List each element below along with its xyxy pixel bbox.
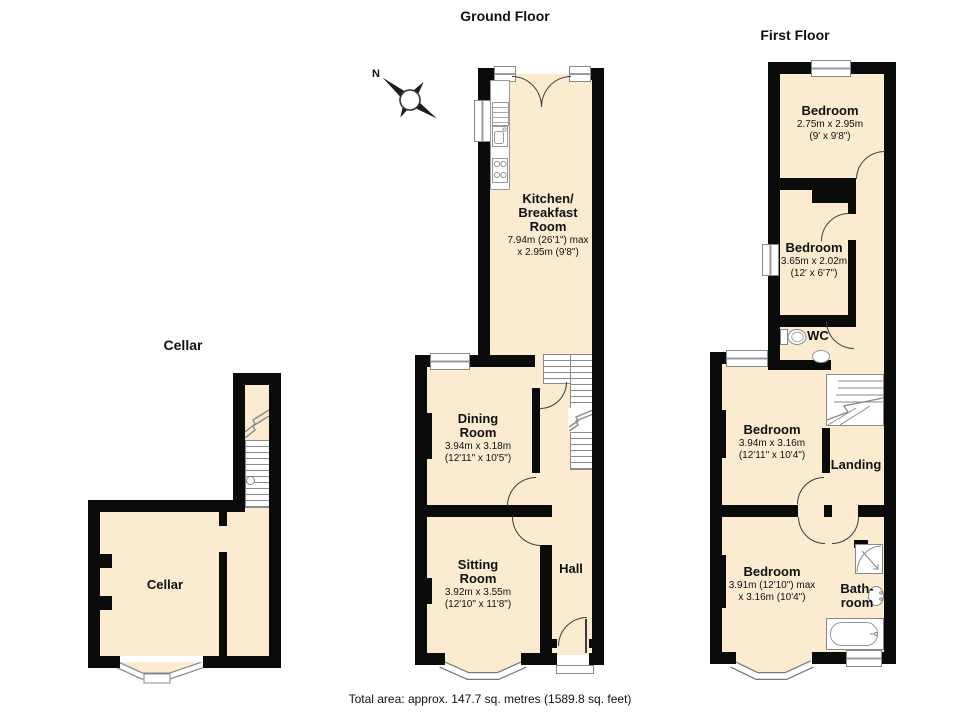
sitting-room-bay-window <box>437 650 529 684</box>
bedroom4-name: Bedroom <box>714 565 830 579</box>
kitchen-sink-icon <box>492 126 508 147</box>
bathroom-name: Bath- room <box>830 582 884 610</box>
wall <box>710 652 736 664</box>
window <box>846 650 882 667</box>
landing-name: Landing <box>831 457 882 472</box>
chimney-breast <box>100 554 112 568</box>
wall <box>269 373 281 668</box>
wall <box>88 656 120 668</box>
compass-icon <box>368 60 448 132</box>
porch-wall-stub <box>589 639 597 648</box>
sitting-name: Sitting Room <box>428 558 528 586</box>
wall <box>415 505 552 517</box>
wall <box>884 62 896 664</box>
wc-sink-icon <box>812 350 830 363</box>
dining-name: Dining Room <box>428 412 528 440</box>
kitchen-dims: 7.94m (26'1") max x 2.95m (9'8") <box>496 235 600 259</box>
wall <box>521 653 557 665</box>
room-label-bedroom3: Bedroom 3.94m x 3.16m (12'11" x 10'4") <box>722 423 822 462</box>
wall <box>88 500 233 512</box>
cellar-room-name: Cellar <box>147 577 183 592</box>
total-area-note: Total area: approx. 147.7 sq. metres (15… <box>0 692 980 706</box>
porch-wall-stub <box>549 639 557 648</box>
wall <box>219 552 227 656</box>
wall <box>88 500 100 668</box>
wall <box>203 656 281 668</box>
bedroom1-name: Bedroom <box>778 104 882 118</box>
window <box>474 100 491 142</box>
chimney-breast <box>100 596 112 610</box>
kitchen-name: Kitchen/ Breakfast Room <box>496 192 600 234</box>
room-label-landing: Landing <box>824 456 888 474</box>
window <box>726 350 768 367</box>
room-label-bathroom: Bath- room <box>830 582 884 610</box>
cellar-title: Cellar <box>128 337 238 353</box>
wall <box>589 653 604 665</box>
wall <box>415 653 445 665</box>
dining-dims: 3.94m x 3.18m (12'11" x 10'5") <box>428 441 528 465</box>
hall-name: Hall <box>559 561 583 576</box>
bedroom1-dims: 2.75m x 2.95m (9' x 9'8") <box>778 119 882 143</box>
wall <box>780 178 856 190</box>
bathtub-icon <box>826 618 884 650</box>
front-door-leaf <box>585 619 587 653</box>
ground-stairs-break-line <box>568 408 594 432</box>
sitting-dims: 3.92m x 3.55m (12'10" x 11'8") <box>428 587 528 611</box>
ground-stairs <box>543 354 572 384</box>
wall <box>219 512 227 526</box>
room-label-sitting: Sitting Room 3.92m x 3.55m (12'10" x 11'… <box>428 558 528 611</box>
cellar-bay-window <box>114 662 210 688</box>
room-label-bedroom4: Bedroom 3.91m (12'10") max x 3.16m (10'4… <box>714 565 830 604</box>
bedroom-bay-window <box>728 650 816 684</box>
room-label-cellar: Cellar <box>115 576 215 594</box>
window <box>569 66 591 82</box>
wall <box>824 505 832 517</box>
window <box>811 60 851 77</box>
room-label-hall: Hall <box>548 560 594 578</box>
bedroom2-dims: 3.65m x 2.02m (12' x 6'7") <box>766 256 862 280</box>
room-label-kitchen: Kitchen/ Breakfast Room 7.94m (26'1") ma… <box>496 192 600 259</box>
wc-name: WC <box>807 328 829 343</box>
wall <box>848 190 856 214</box>
window <box>430 353 470 370</box>
cellar-stairs-break-line <box>244 408 270 438</box>
first-floor-title: First Floor <box>730 27 860 43</box>
room-label-dining: Dining Room 3.94m x 3.18m (12'11" x 10'5… <box>428 412 528 465</box>
compass-north-label: N <box>372 68 380 80</box>
first-floor-stairs <box>826 374 884 426</box>
wall <box>710 505 798 517</box>
floorplan-canvas: Cellar Ground Floor First Floor N Cellar <box>0 0 980 712</box>
ground-floor-title: Ground Floor <box>430 8 580 24</box>
ground-stairs <box>570 354 594 410</box>
hob-icon <box>492 158 508 183</box>
bedroom3-name: Bedroom <box>722 423 822 437</box>
ground-stairs <box>570 432 594 470</box>
bedroom2-name: Bedroom <box>766 241 862 255</box>
wall <box>858 505 896 517</box>
wall <box>233 373 245 512</box>
bedroom3-dims: 3.94m x 3.16m (12'11" x 10'4") <box>722 438 822 462</box>
kitchen-drawers <box>492 102 509 126</box>
room-label-bedroom1: Bedroom 2.75m x 2.95m (9' x 9'8") <box>778 104 882 143</box>
bedroom4-dims: 3.91m (12'10") max x 3.16m (10'4") <box>714 580 830 604</box>
wall <box>532 388 540 473</box>
room-label-bedroom2: Bedroom 3.65m x 2.02m (12' x 6'7") <box>766 241 862 280</box>
shower-icon <box>855 544 883 574</box>
cellar-stairs <box>245 440 271 508</box>
cellar-stairs-newel-post <box>246 476 255 485</box>
front-door-step <box>556 665 594 674</box>
room-label-wc: WC <box>798 327 838 345</box>
